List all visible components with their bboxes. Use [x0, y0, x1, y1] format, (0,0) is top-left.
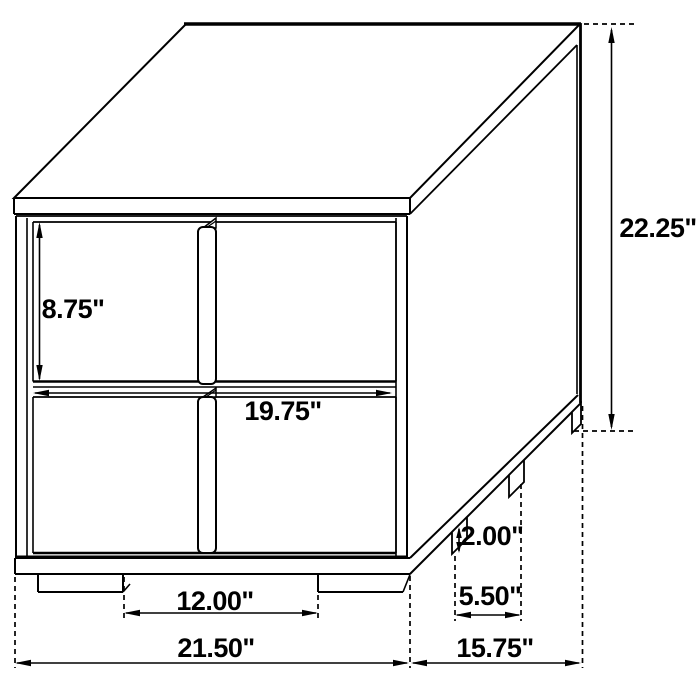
dimension-label-top-drawer-height: 8.75" [42, 294, 105, 324]
dimension-label-overall-depth: 15.75" [456, 633, 533, 663]
dimension-label-drawer-width: 19.75" [244, 396, 321, 426]
nightstand-line-drawing: 8.75" 19.75" 22.25" 2.00" 5.50" 12.00" 2… [0, 0, 700, 700]
dimension-label-side-foot-spacing: 5.50" [459, 581, 522, 611]
dimension-label-front-foot-spacing: 12.00" [176, 586, 253, 616]
dimension-label-overall-height: 22.25" [619, 213, 696, 243]
front-left-foot [38, 575, 130, 592]
bottom-drawer-handle [198, 388, 216, 553]
dimension-label-overall-width: 21.50" [177, 633, 254, 663]
top-drawer-handle [198, 218, 216, 384]
front-right-foot [318, 575, 410, 593]
dimension-label-foot-height: 2.00" [461, 521, 524, 551]
dimension-diagram: 8.75" 19.75" 22.25" 2.00" 5.50" 12.00" 2… [0, 0, 700, 700]
side-back-foot [572, 403, 581, 433]
cabinet-top-panel [14, 24, 581, 214]
plinth-base [15, 558, 410, 574]
side-middle-foot [509, 460, 524, 497]
